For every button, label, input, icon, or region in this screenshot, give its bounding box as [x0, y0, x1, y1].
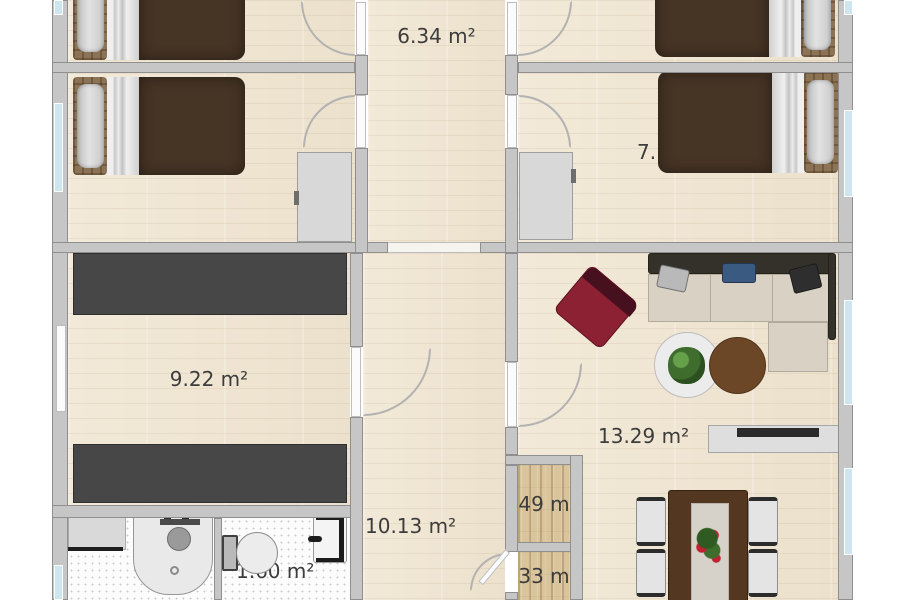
window-icon[interactable]: [844, 0, 853, 15]
bed-sheet: [769, 0, 801, 57]
bed-sheet: [107, 77, 139, 175]
cabinet-handle: [571, 169, 576, 183]
bed-blanket: [655, 0, 769, 57]
closet-lower: 33 m: [518, 552, 570, 600]
room-area-label: 49 m: [518, 493, 569, 515]
wall-h1-right: [518, 62, 853, 73]
window-icon[interactable]: [844, 110, 853, 197]
rug-icon[interactable]: [709, 337, 766, 394]
toilet-icon[interactable]: [222, 532, 278, 574]
bed-blanket: [658, 73, 772, 173]
flowers-icon: [691, 523, 727, 567]
door-icon[interactable]: [356, 95, 366, 148]
sofa-pillow-blue: [722, 263, 756, 283]
counter-edge: [68, 547, 123, 551]
wardrobe-icon[interactable]: [73, 253, 347, 315]
shower-icon[interactable]: [133, 512, 213, 595]
sofa-chaise-icon[interactable]: [768, 322, 828, 372]
dining-chair-icon[interactable]: [636, 497, 666, 546]
wall-h1-left: [52, 62, 355, 73]
window-icon[interactable]: [54, 0, 63, 15]
door-icon[interactable]: [507, 362, 517, 427]
bed-icon[interactable]: [655, 0, 835, 57]
bed-pillow: [807, 80, 834, 164]
cabinet-frame-side: [339, 518, 344, 562]
door-icon[interactable]: [507, 95, 517, 148]
shower-bar: [160, 519, 200, 525]
door-icon[interactable]: [56, 325, 66, 412]
wall-hallway-right-a: [505, 55, 518, 95]
cabinet-icon[interactable]: [297, 152, 352, 242]
room-area-label: 33 m: [518, 565, 569, 587]
bed-icon[interactable]: [73, 77, 245, 175]
doorway-threshold: [388, 242, 480, 253]
wall-h2-right: [480, 242, 853, 253]
room-area-label: 13.29 m²: [598, 425, 689, 447]
window-icon[interactable]: [844, 300, 853, 405]
room-area-label: 7.: [637, 141, 656, 163]
wall-closet-left-b: [505, 592, 518, 600]
sofa-seam: [710, 274, 711, 322]
closet-upper: 49 m: [518, 465, 570, 542]
hall-main: 10.13 m²: [363, 253, 505, 600]
door-icon[interactable]: [351, 347, 361, 417]
wall-hall-left-b: [350, 417, 363, 600]
wardrobe-icon[interactable]: [73, 444, 347, 503]
dining-chair-icon[interactable]: [748, 497, 778, 546]
wall-hallway-right-b: [505, 148, 518, 253]
room-bedroom-left-2: 2: [68, 73, 355, 242]
floorplan-canvas: 2 6.34 m² 7.: [0, 0, 900, 600]
wall-living-left-b: [505, 427, 518, 455]
wall-wc-divider: [214, 518, 222, 600]
dining-table-icon[interactable]: [668, 490, 748, 600]
door-icon[interactable]: [507, 2, 517, 55]
plant-icon[interactable]: [668, 347, 705, 384]
armchair-icon[interactable]: [553, 264, 639, 350]
sofa-seam: [772, 274, 773, 322]
bed-blanket: [139, 77, 245, 175]
hallway-top: 6.34 m²: [368, 0, 505, 242]
room-area-label: 6.34 m²: [368, 25, 505, 47]
tall-cabinet-icon[interactable]: [313, 515, 347, 563]
room-storage: 9.22 m²: [68, 253, 350, 505]
wall-hallway-left-b: [355, 148, 368, 253]
cabinet-handle: [308, 536, 322, 542]
bed-icon[interactable]: [658, 73, 838, 173]
window-icon[interactable]: [844, 468, 853, 555]
sofa-side-icon: [828, 253, 836, 340]
wall-closet-left-a: [505, 465, 518, 552]
room-area-label: 10.13 m²: [365, 515, 456, 537]
wall-living-left-a: [505, 253, 518, 362]
bed-blanket: [139, 0, 245, 60]
wall-hall-left-a: [350, 253, 363, 347]
wall-h3-bathroom: [52, 505, 363, 518]
dining-chair-icon[interactable]: [636, 549, 666, 597]
window-icon[interactable]: [54, 565, 63, 600]
bed-sheet: [107, 0, 139, 60]
room-area-label: 9.22 m²: [170, 368, 248, 390]
drain-icon: [170, 566, 179, 575]
bed-pillow: [804, 0, 831, 50]
cabinet-icon[interactable]: [519, 152, 573, 240]
cabinet-handle: [294, 191, 299, 205]
bed-sheet: [772, 73, 804, 173]
window-icon[interactable]: [54, 103, 63, 192]
wall-closet-right: [570, 455, 583, 600]
tv-board-icon[interactable]: [708, 425, 838, 453]
wall-hallway-left-a: [355, 55, 368, 95]
armchair-back: [582, 266, 639, 317]
bed-pillow: [77, 84, 104, 168]
wall-h2-left: [52, 242, 388, 253]
room-bedroom-right-2: 7.: [518, 73, 838, 242]
dining-chair-icon[interactable]: [748, 549, 778, 597]
bed-icon[interactable]: [73, 0, 245, 60]
door-icon[interactable]: [356, 2, 366, 55]
shower-head-icon: [167, 527, 191, 551]
toilet-bowl: [236, 532, 278, 574]
bed-pillow: [77, 0, 104, 52]
tv-icon: [737, 428, 819, 437]
